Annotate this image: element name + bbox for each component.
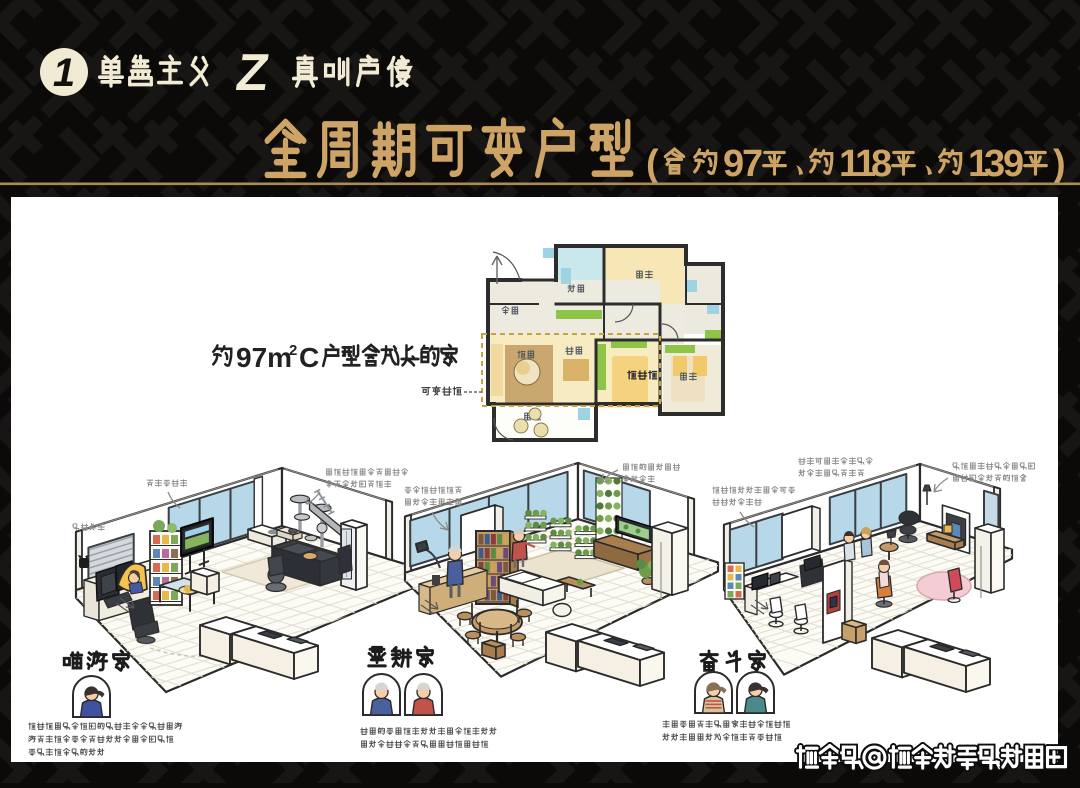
svg-text:1: 1: [53, 51, 75, 95]
svg-text:(: (: [646, 143, 659, 185]
svg-text:2: 2: [289, 342, 297, 359]
svg-text:9: 9: [723, 143, 744, 185]
svg-text:7: 7: [742, 143, 763, 185]
svg-text:8: 8: [871, 143, 892, 185]
svg-text:9: 9: [1003, 143, 1024, 185]
svg-text:): ): [1053, 143, 1066, 185]
svg-text:3: 3: [984, 143, 1005, 185]
svg-text:C: C: [299, 342, 319, 373]
svg-text:97m: 97m: [236, 342, 292, 373]
